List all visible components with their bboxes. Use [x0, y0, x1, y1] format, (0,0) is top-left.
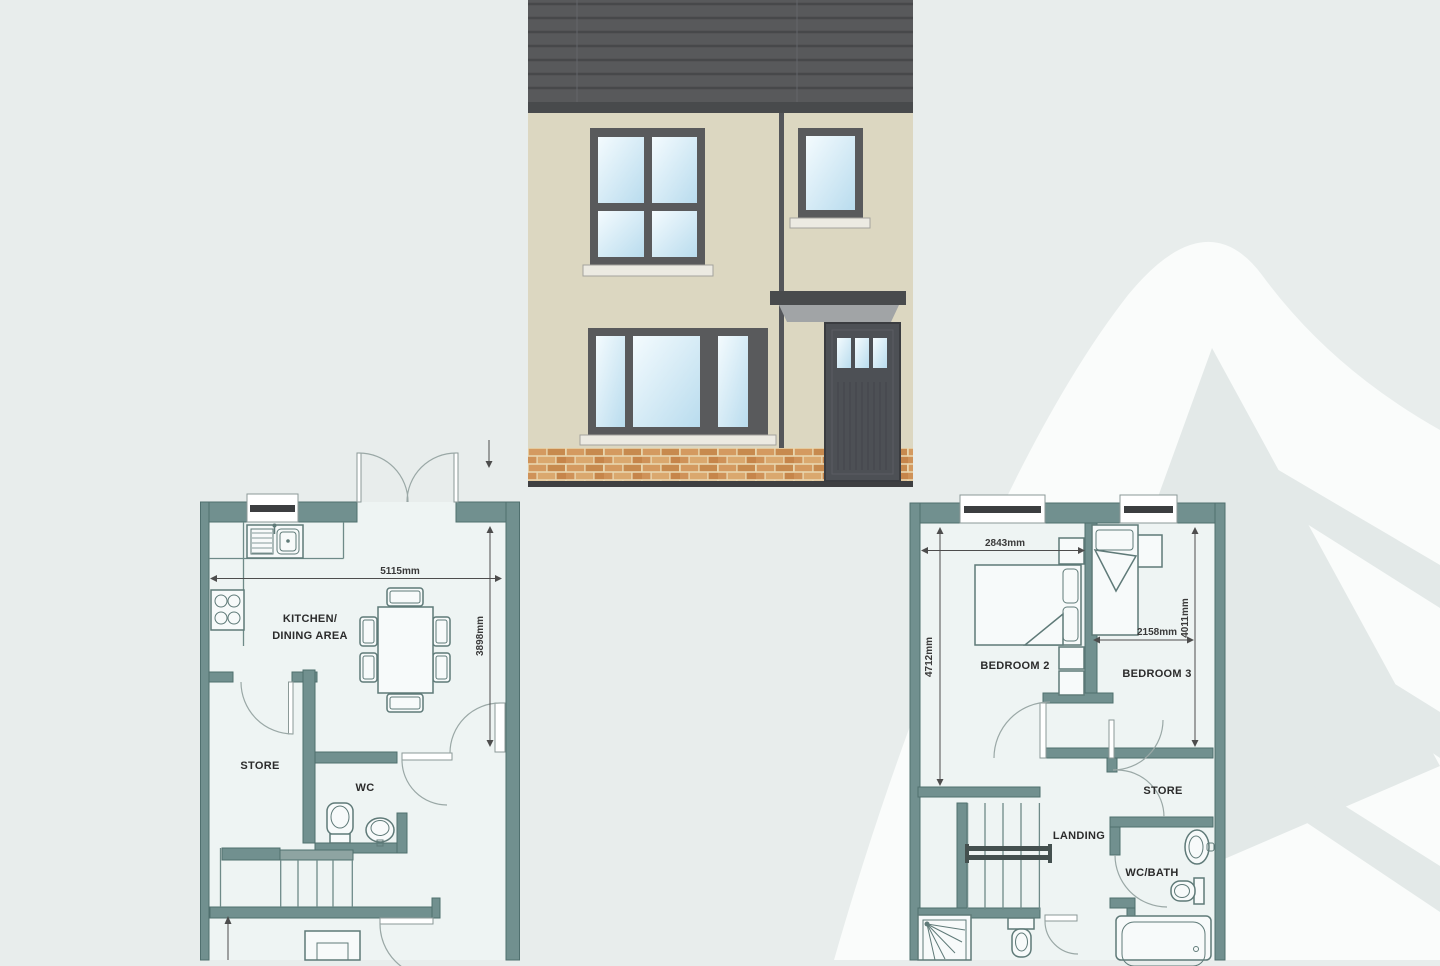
toilet-icon-2	[1008, 918, 1034, 957]
listing-floorplan-page: { "ground_floor": { "labels": { "kitchen…	[0, 0, 1440, 960]
leader-arrow	[486, 440, 493, 468]
toilet-icon	[327, 803, 353, 843]
front-door	[825, 323, 900, 481]
hall-furniture	[305, 931, 360, 960]
ground-floor-plan: 5115mm 3898mm KITCHEN/ DINING AREA STORE…	[200, 440, 520, 966]
ground-floor-interior	[201, 502, 519, 960]
roof-fascia	[528, 102, 913, 113]
dim-label: 4011mm	[1180, 598, 1191, 638]
french-doors	[357, 453, 458, 502]
window-sill	[580, 435, 776, 445]
room-label-bedroom3: BEDROOM 3	[1122, 668, 1191, 680]
hall-window	[790, 128, 870, 228]
room-label-wc: WC	[356, 782, 375, 794]
dim-label: 5115mm	[380, 566, 420, 577]
dim-label: 3898mm	[475, 616, 486, 656]
kitchen-sink-icon	[247, 524, 303, 559]
room-label-kitchen: KITCHEN/	[283, 613, 337, 625]
room-label-kitchen-2: DINING AREA	[272, 630, 348, 642]
bathtub-icon	[1116, 916, 1211, 966]
roof	[528, 0, 913, 113]
dim-label: 4712mm	[924, 637, 935, 677]
toilet-icon	[1171, 878, 1204, 904]
door-canopy	[770, 291, 906, 322]
first-floor-plan: 2843mm 4712mm 2158mm 4011mm BEDROOM 2 BE…	[905, 440, 1235, 966]
kitchen-window	[247, 494, 298, 522]
bedroom2-window	[960, 495, 1045, 523]
upper-window	[583, 128, 713, 276]
hob-icon	[211, 590, 244, 630]
window-sill	[583, 265, 713, 276]
bedroom3-window	[1120, 495, 1177, 523]
shower-icon	[918, 915, 971, 960]
room-label-store: STORE	[1143, 785, 1182, 797]
room-label-landing: LANDING	[1053, 830, 1105, 842]
dim-label: 2158mm	[1137, 627, 1177, 638]
window-sill	[790, 218, 870, 228]
living-room-window	[580, 328, 776, 445]
room-label-bedroom2: BEDROOM 2	[980, 660, 1049, 672]
room-label-wc-bath: WC/BATH	[1125, 867, 1178, 879]
dim-label: 2843mm	[985, 538, 1025, 549]
house-elevation	[528, 0, 913, 487]
room-label-store: STORE	[240, 760, 279, 772]
